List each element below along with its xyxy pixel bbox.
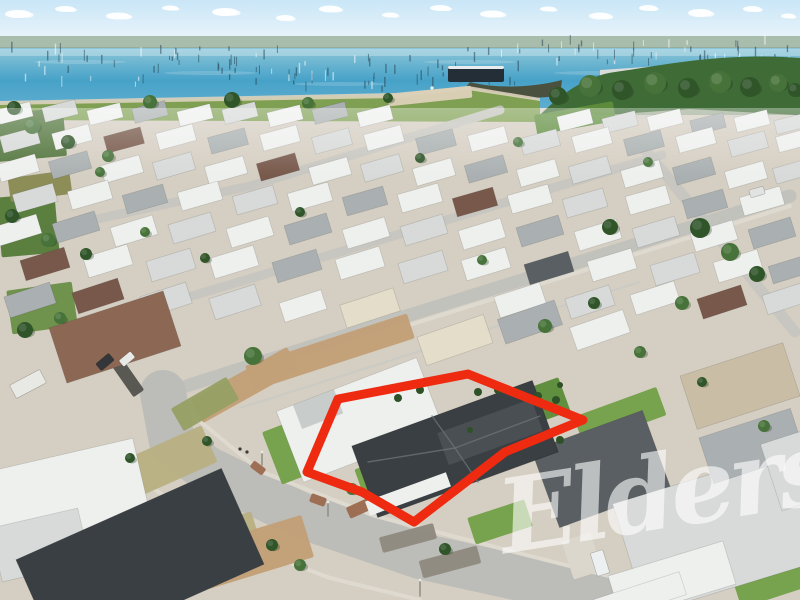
aerial-photo: Elders <box>0 0 800 600</box>
depth-haze <box>0 108 800 178</box>
far-shore-layer <box>0 36 800 50</box>
photo-canvas <box>0 0 800 600</box>
sky-layer <box>0 0 800 38</box>
